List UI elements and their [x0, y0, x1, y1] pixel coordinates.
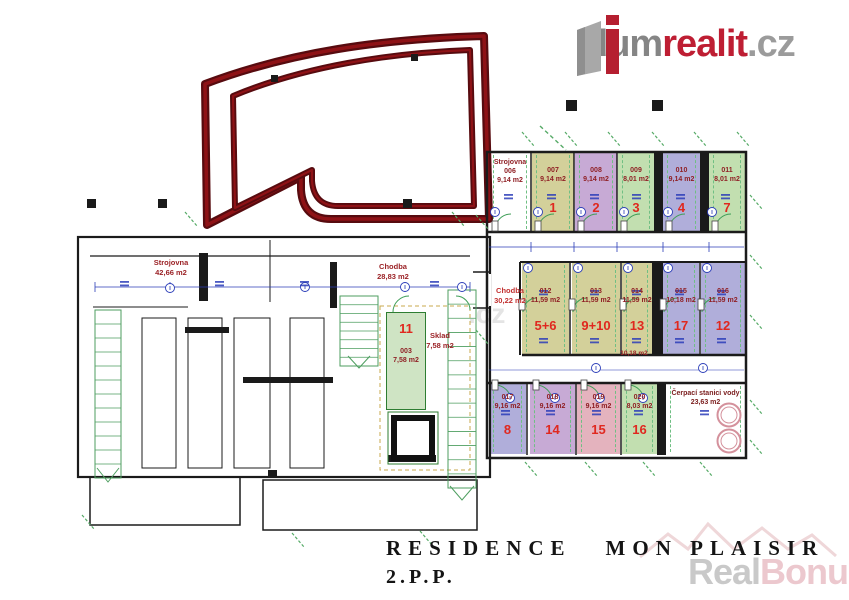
cell-label: Strojovna 006 9,14 m2 — [489, 153, 531, 185]
cell-number: 12 — [701, 318, 745, 333]
cell-number: 17 — [663, 318, 699, 333]
cell-number: 13 — [622, 318, 652, 333]
storage-cell-020: 0208,03 m2 16 — [622, 384, 657, 454]
storage-cell-006: Strojovna 006 9,14 m2 — [489, 153, 531, 231]
storage-cell-016: 01611,59 m2 12 — [701, 263, 745, 354]
floorplan-page: Strojovna 006 9,14 m2 0079,14 m2 1 0089,… — [0, 0, 849, 600]
plan-door-arcs — [393, 296, 470, 312]
pump-area: 23,63 m2 — [666, 399, 745, 408]
corridor-mid-area-label: 10,18 m2 — [608, 349, 660, 359]
cell-number: 8 — [489, 422, 526, 437]
storage-cell-010: 0109,14 m2 4 — [663, 153, 700, 231]
cell-number: 7 — [709, 200, 745, 215]
storage-cell-018: 0189,16 m2 14 — [530, 384, 575, 454]
storage-cell-013: 01311,59 m2 9+10 — [572, 263, 620, 354]
cell-number: 3 — [618, 200, 654, 215]
grid-chodba-label: Chodba30,22 m2 — [484, 286, 536, 305]
logo-text-realit: realit — [662, 23, 747, 65]
cell-number: 14 — [530, 422, 575, 437]
elevator-shaft — [388, 412, 438, 464]
garage-ramp-outline — [205, 36, 489, 225]
storage-cell-003-room11: 11 003 7,58 m2 — [386, 312, 426, 410]
cell-number: 2 — [575, 200, 617, 215]
logo-text-dum: dum — [585, 23, 662, 65]
storage-cell-011: 0118,01 m2 7 — [709, 153, 745, 231]
dumrealit-logo: dumrealit.cz — [575, 14, 795, 74]
pump-station-area: Čerpací stanici vody 23,63 m2 — [666, 384, 745, 454]
pump-label: Čerpací stanici vody — [666, 390, 745, 399]
plan-chodba-label: Chodba28,83 m2 — [356, 262, 430, 281]
storage-cell-014: 01411,59 m2 13 — [622, 263, 652, 354]
cell-number: 16 — [622, 422, 657, 437]
cell-number: 1 — [532, 200, 574, 215]
logo-text-cz: .cz — [747, 23, 795, 65]
floor-label: 2.P.P. — [386, 566, 456, 589]
storage-cell-009: 0098,01 m2 3 — [618, 153, 654, 231]
cell-number: 5+6 — [522, 318, 569, 333]
plan-strojovna-label: Strojovna42,66 m2 — [128, 258, 214, 277]
cell-number: 9+10 — [572, 318, 620, 333]
cell-number: 4 — [663, 200, 700, 215]
sklad-label: Sklad7,58 m2 — [416, 331, 464, 350]
page-title: RESIDENCEMON PLAISIR — [386, 536, 824, 561]
storage-cell-019: 0199,16 m2 15 — [577, 384, 620, 454]
cell-number: 15 — [577, 422, 620, 437]
storage-cell-007: 0079,14 m2 1 — [532, 153, 574, 231]
storage-cell-008: 0089,14 m2 2 — [575, 153, 617, 231]
green-dash-long — [540, 126, 566, 150]
storage-cell-017: 0179,16 m2 8 — [489, 384, 526, 454]
storage-cell-012: 01211,59 m2 5+6 — [522, 263, 569, 354]
storage-cell-015: 01510,18 m2 17 — [663, 263, 699, 354]
